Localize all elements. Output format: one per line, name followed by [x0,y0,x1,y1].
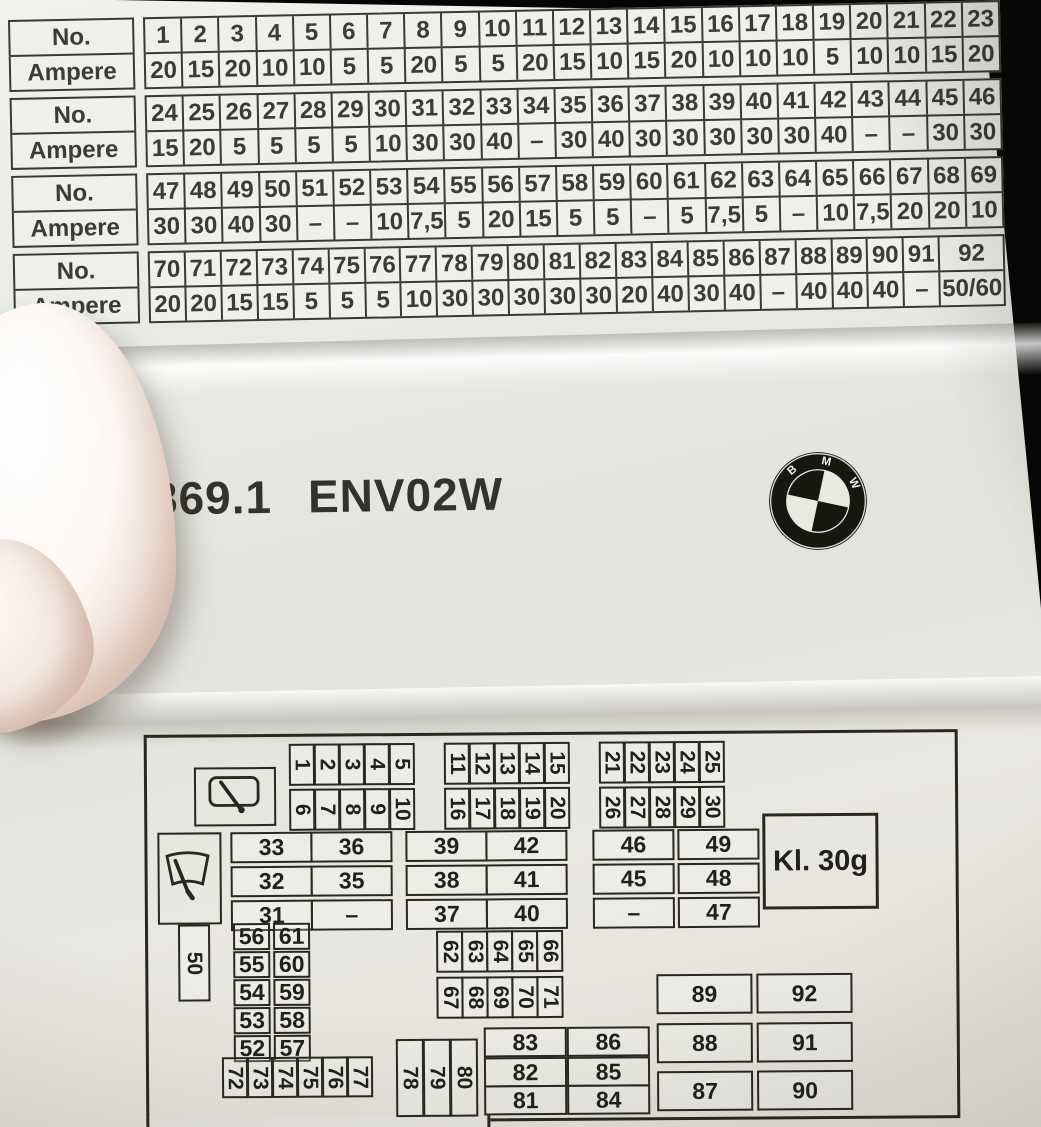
no-label: No. [12,97,135,132]
fuse-no-cell: 64 [778,162,816,196]
windscreen-wiper-icon [159,834,216,918]
fuse-no-cell: 29 [330,93,368,127]
fuse-ampere-cell: 5 [328,284,365,318]
fuse-ampere-cell: 5 [478,47,516,81]
fuse-ampere-cell: 10 [776,41,814,75]
fuse-number: 13 [495,752,519,776]
fuse-number: 58 [279,1007,305,1034]
fuse-box-66: 66 [536,930,563,972]
fuse-box-80: 80 [450,1039,479,1117]
fuse-ampere-cell: 20 [218,52,256,86]
fuse-ampere-cell: 5 [444,204,482,238]
fuse-no-cell: 24 [147,97,183,131]
fuse-no-cell: 77 [399,247,436,281]
fuse-no-cell: 68 [927,159,965,193]
fuse-ampere-cell: 40 [480,125,518,159]
fuse-box-2: 2 [314,743,340,785]
fuse-ampere-cell: 5 [367,49,405,83]
ampere-label: Ampere [12,130,135,167]
fuse-ampere-cell: 20 [515,46,553,80]
fuse-number: 30 [700,795,724,819]
fuse-ampere-cell: 30 [184,209,222,243]
fuse-ampere-cell: 5 [292,285,329,319]
fuse-no-cell: 56 [481,168,519,202]
fuse-no-cell: 41 [776,84,814,118]
fuse-no-cell: 28 [293,94,331,128]
fuse-ampere-cell: 15 [627,44,665,78]
fuse-box-56: 56 [233,923,270,950]
rear-window-wiper-icon [196,769,270,821]
fuse-no-cell: 9 [440,13,478,47]
fuse-number: 9 [365,803,389,815]
fuse-number: 49 [706,831,732,858]
fuse-box-64: 64 [486,930,513,972]
fuse-number: 1 [290,759,314,771]
fuse-no-cell: 32 [442,91,480,125]
fuse-table-grid: 4748495051525354555657585960616263646566… [146,156,1004,245]
fuse-number: 40 [514,900,540,927]
fuse-number: 89 [692,980,718,1007]
fuse-table-header: No.Ampere [10,95,137,170]
fuse-ampere-cell: 30 [405,126,443,160]
fuse-number: 15 [545,751,569,775]
fuse-no-cell: 17 [738,7,776,41]
fuse-number: 20 [545,796,569,820]
fuse-box-39: 39 [405,830,487,862]
fuse-ampere-cell: 5 [741,198,779,232]
fuse-ampere-cell: 10 [701,42,739,76]
fuse-no-cell: 14 [626,9,664,43]
fuse-box-17: 17 [469,787,495,829]
fuse-number: 14 [520,751,544,775]
fuse-ampere-cell: 5 [813,40,851,74]
fuse-box-74: 74 [272,1057,298,1098]
fuse-ampere-cell: 5 [556,201,594,235]
fuse-no-cell: 60 [629,165,667,199]
fuse-number: 25 [700,750,724,774]
fuse-ampere-cell: 50/60 [939,271,1004,305]
fuse-ampere-cell: 5 [364,283,401,317]
fuse-no-cell: 44 [888,82,926,116]
fuse-no-cell: 49 [220,173,258,207]
fuse-no-cell: 88 [794,240,831,274]
fuse-ampere-cell: 20 [184,287,221,321]
fuse-box-63: 63 [461,930,488,972]
fuse-box-38: 38 [406,864,488,896]
fuse-no-cell: 89 [830,239,867,273]
fuse-box-41: 41 [486,864,568,896]
fuse-number: 60 [279,951,305,978]
fuse-number: 70 [513,985,537,1009]
fuse-no-cell: 39 [702,85,740,119]
fuse-number: 54 [239,979,265,1006]
fuse-ampere-cell: 30 [436,282,473,316]
fuse-ampere-cell: 15 [553,45,591,79]
fuse-no-cell: 22 [923,3,961,37]
fuse-ampere-cell: – [517,124,555,158]
fuse-no-cell: 30 [368,92,406,126]
fuse-number: 16 [445,797,469,821]
fuse-number: 3 [340,758,364,770]
front-wiper-fuse-box [157,832,222,924]
fuse-number: 46 [621,831,647,858]
fuse-ampere-cell: 10 [590,45,628,79]
fuse-number: 45 [621,865,647,892]
fuse-no-cell: 16 [700,7,738,41]
fuse-number: 11 [445,752,469,774]
fuse-ampere-cell: 5 [593,201,631,235]
photo-of-fuse-card: No.Ampere1234567891011121314151617181920… [0,0,1041,1127]
fuse-box-10: 10 [389,788,415,830]
fuse-ampere-cell: – [903,272,940,306]
fuse-number: 71 [538,985,562,1009]
fuse-box-32: 32 [231,866,313,898]
bmw-roundel-icon: B M W [766,449,870,553]
fuse-ampere-cell: 5 [330,50,368,84]
fuse-ampere-cell: 15 [256,285,293,319]
fuse-box-58: 58 [274,1007,311,1034]
fuse-no-cell: 86 [722,241,759,275]
fuse-box-5: 5 [389,743,415,785]
fuse-ampere-cell: 7,5 [704,198,742,232]
fuse-no-cell: 74 [291,250,328,284]
fuse-ampere-cell: – [333,206,371,240]
fuse-ampere-cell: 30 [666,121,704,155]
fuse-box-25: 25 [699,741,725,783]
fuse-box-11: 11 [444,743,470,785]
fuse-box-empty: – [311,899,393,931]
fuse-number: 39 [434,833,460,860]
fuse-ampere-cell: 20 [150,288,185,322]
fuse-number: 73 [248,1066,272,1090]
no-label: No. [10,20,133,55]
fuse-box-empty: – [593,897,675,929]
fuse-no-cell: 57 [518,167,556,201]
fuse-no-cell: 35 [553,88,591,122]
fuse-number: 38 [434,867,460,894]
fuse-ampere-cell: 5 [331,128,369,162]
fuse-ampere-cell: 30 [149,210,185,244]
fuse-ampere-cell: 40 [831,274,868,308]
fuse-ampere-cell: – [779,197,817,231]
fuse-number: 90 [792,1077,818,1104]
fuse-box-16: 16 [444,788,470,830]
fuse-number: 2 [315,759,339,771]
fuse-ampere-cell: – [759,275,796,309]
fuse-number: 62 [438,940,462,964]
fuse-no-cell: 27 [256,94,294,128]
fuse-ampere-cell: 30 [554,123,592,157]
fuse-box-81: 81 [484,1085,567,1116]
fuse-ampere-cell: 5 [257,129,295,163]
fuse-box-40: 40 [486,898,568,930]
fuse-number: 86 [595,1028,621,1055]
fuse-ampere-cell: 15 [924,38,962,72]
fuse-table-3: No.Ampere4748495051525354555657585960616… [11,156,1004,248]
fuse-ampere-cell: 20 [961,37,999,71]
fuse-no-cell: 10 [477,12,515,46]
fuse-ampere-cell: 10 [850,39,888,73]
fuse-no-cell: 2 [180,18,218,52]
fuse-box-33: 33 [230,832,312,864]
fuse-box-62: 62 [436,931,463,973]
fuse-no-cell: 26 [219,95,257,129]
fuse-box-48: 48 [678,863,760,895]
fuse-table-2: No.Ampere2425262728293031323334353637383… [10,78,1003,170]
fuse-box-8: 8 [339,788,365,830]
fuse-ampere-cell: 10 [887,39,925,73]
fuse-no-cell: 25 [182,96,220,130]
fuse-box-layout-diagram: Kl. 30g 12345678910111213141516171819202… [144,729,961,1124]
fuse-number: 19 [520,796,544,820]
fuse-box-3: 3 [339,743,365,785]
fuse-box-13: 13 [494,742,520,784]
fuse-no-cell: 87 [758,240,795,274]
fuse-number: 18 [495,797,519,821]
fuse-no-cell: 76 [363,248,400,282]
bmw-logo: B M W [766,449,870,553]
fuse-number: 83 [512,1029,538,1056]
fuse-ampere-cell: 30 [687,277,724,311]
fuse-number: 21 [600,751,624,775]
fuse-box-9: 9 [364,788,390,830]
fuse-no-cell: 1 [145,19,181,53]
fuse-ampere-cell: 15 [220,286,257,320]
fuse-number: 63 [463,940,487,964]
fuse-box-42: 42 [485,830,567,862]
fuse-number: 56 [239,923,265,950]
fuse-ampere-cell: 5 [667,199,705,233]
fuse-number: 85 [596,1058,622,1085]
fuse-no-cell: 12 [552,10,590,44]
fuse-ampere-cell: 10 [370,205,408,239]
fuse-number: 87 [692,1077,718,1104]
fuse-box-29: 29 [674,786,700,828]
fuse-no-cell: 8 [403,13,441,47]
fuse-no-cell: 7 [366,14,404,48]
fuse-number: 61 [279,923,305,950]
fuse-box-21: 21 [599,741,625,783]
fuse-box-54: 54 [233,979,270,1006]
fuse-box-53: 53 [234,1007,271,1034]
fuse-number: 66 [538,939,562,963]
fuse-box-49: 49 [677,829,759,861]
fuse-box-28: 28 [649,786,675,828]
fuse-number: 7 [315,804,339,816]
fuse-number: 72 [223,1066,247,1090]
fuse-no-cell: 43 [851,82,889,116]
fuse-box-85: 85 [567,1056,650,1087]
fuse-number: 4 [365,758,389,770]
fuse-box-79: 79 [423,1039,452,1117]
fuse-no-cell: 23 [961,2,999,36]
fuse-number: 78 [398,1066,422,1090]
fuse-box-37: 37 [406,898,488,930]
fuse-ampere-cell: 10 [292,51,330,85]
fuse-ampere-cell: 5 [220,130,258,164]
fuse-number: 12 [470,752,494,776]
fuse-box-22: 22 [624,741,650,783]
fuse-box-86: 86 [567,1026,650,1057]
fuse-no-cell: 3 [217,17,255,51]
fuse-ampere-cell: 30 [703,120,741,154]
fuse-no-cell: 59 [592,166,630,200]
fuse-box-70: 70 [511,976,538,1018]
fuse-ampere-cell: 40 [814,118,852,152]
fuse-number: 28 [650,795,674,819]
fuse-no-cell: 54 [406,169,444,203]
fuse-number: 50 [182,951,206,975]
fuse-number: 64 [488,940,512,964]
fuse-number: 42 [514,832,540,859]
fuse-number: 76 [323,1065,347,1089]
fuse-box-68: 68 [461,976,488,1018]
fuse-number: 84 [596,1086,622,1113]
fuse-box-30: 30 [699,786,725,828]
fuse-ampere-cell: 40 [723,276,760,310]
fuse-ampere-cell: – [851,117,889,151]
fuse-no-cell: 33 [479,90,517,124]
fuse-number: 41 [514,866,540,893]
fuse-number: 17 [470,797,494,821]
fuse-ampere-cell: 30 [926,116,964,150]
fuse-no-cell: 4 [255,16,293,50]
fuse-box-7: 7 [314,788,340,830]
fuse-box-19: 19 [519,787,545,829]
fuse-box-89: 89 [656,974,752,1015]
fuse-ampere-cell: 30 [258,207,296,241]
no-label: No. [15,253,138,288]
fuse-no-cell: 67 [889,160,927,194]
fuse-number: 75 [298,1065,322,1089]
fuse-no-cell: 45 [925,81,963,115]
fuse-number: 27 [625,796,649,820]
fuse-no-cell: 62 [704,163,742,197]
fuse-number: 81 [513,1087,539,1114]
fuse-box-26: 26 [599,786,625,828]
fuse-no-cell: 47 [148,175,184,209]
fuse-number: 5 [390,758,414,770]
fuse-number: 37 [434,901,460,928]
fuse-no-cell: 80 [507,245,544,279]
fuse-no-cell: 65 [815,161,853,195]
fuse-box-78: 78 [396,1039,425,1117]
fuse-box-35: 35 [311,865,393,897]
fuse-ampere-cell: 10 [255,51,293,85]
fuse-no-cell: 92 [938,236,1003,270]
fuse-number: 23 [650,750,674,774]
fuse-table-grid: 2425262728293031323334353637383940414243… [145,78,1003,167]
fuse-ampere-cell: 7,5 [853,195,891,229]
fuse-no-cell: 70 [150,253,185,287]
fuse-box-61: 61 [273,923,310,950]
rear-wiper-fuse-box [194,767,276,827]
fuse-number: 35 [339,867,365,894]
fuse-number: 91 [792,1029,818,1056]
fuse-box-67: 67 [436,977,463,1019]
fuse-no-cell: 53 [369,170,407,204]
fuse-number: 82 [513,1059,539,1086]
fuse-box-77: 77 [347,1056,373,1097]
fuse-box-75: 75 [297,1057,323,1098]
fuse-number: 26 [600,796,624,820]
variant-code: ENV02W [308,468,504,523]
fuse-ampere-cell: 20 [615,278,652,312]
fuse-box-83: 83 [484,1027,567,1058]
fuse-number: 77 [348,1065,372,1089]
fuse-table-header: No.Ampere [8,17,135,92]
fuse-ampere-cell: 20 [890,195,928,229]
kl-30g-label: Kl. 30g [773,844,868,878]
fuse-ampere-cell: 40 [591,123,629,157]
fuse-no-cell: 15 [663,8,701,42]
fuse-no-cell: 91 [902,237,939,271]
fuse-no-cell: 73 [255,250,292,284]
fuse-box-69: 69 [486,976,513,1018]
fuse-no-cell: 36 [591,88,629,122]
fuse-box-12: 12 [469,742,495,784]
fuse-ampere-cell: 15 [518,202,556,236]
fuse-no-cell: 79 [471,246,508,280]
fuse-ampere-cell: 30 [740,120,778,154]
fuse-box-14: 14 [519,742,545,784]
fuse-ampere-cell: 20 [927,194,965,228]
fuse-no-cell: 83 [615,243,652,277]
fuse-number: 74 [273,1066,297,1090]
fuse-box-71: 71 [536,976,563,1018]
fuse-box-55: 55 [233,951,270,978]
fuse-box-1: 1 [289,744,315,786]
fuse-no-cell: 46 [962,80,1000,114]
fuse-no-cell: 50 [258,172,296,206]
fuse-box-47: 47 [678,897,760,929]
fuse-ampere-cell: 5 [294,129,332,163]
fuse-no-cell: 48 [183,174,221,208]
fuse-table-grid: 7071727374757677787980818283848586878889… [148,234,1006,323]
fuse-box-20: 20 [544,787,570,829]
fuse-ampere-cell: 30 [963,115,1001,149]
fuse-ampere-cell: 5 [441,48,479,82]
fuse-ampere-cell: 10 [738,42,776,76]
fuse-ampere-cell: 30 [628,122,666,156]
fuse-no-cell: 20 [849,4,887,38]
fuse-ampere-cell: 30 [508,280,545,314]
fuse-ampere-cell: 30 [579,279,616,313]
fuse-number: 65 [513,939,537,963]
fuse-box-24: 24 [674,741,700,783]
fuse-no-cell: 75 [327,249,364,283]
fuse-no-cell: 71 [184,252,221,286]
fuse-ampere-cell: 30 [472,281,509,315]
fuse-number: 59 [279,979,305,1006]
fuse-box-73: 73 [247,1057,273,1098]
fuse-no-cell: 19 [812,5,850,39]
fuse-box-36: 36 [310,831,392,863]
fuse-box-91: 91 [757,1022,853,1063]
fuse-no-cell: 11 [515,11,553,45]
fuse-no-cell: 52 [332,171,370,205]
fuse-no-cell: 72 [220,251,257,285]
fuse-no-cell: 85 [686,242,723,276]
fuse-number: 69 [488,986,512,1010]
fuse-ampere-cell: 20 [146,54,182,88]
fuse-amperage-tables: No.Ampere1234567891011121314151617181920… [8,0,1006,332]
fuse-no-cell: 51 [295,172,333,206]
fuse-number: 22 [625,751,649,775]
fuse-box-84: 84 [567,1084,650,1115]
fuse-no-cell: 21 [886,4,924,38]
fuse-no-cell: 81 [543,245,580,279]
